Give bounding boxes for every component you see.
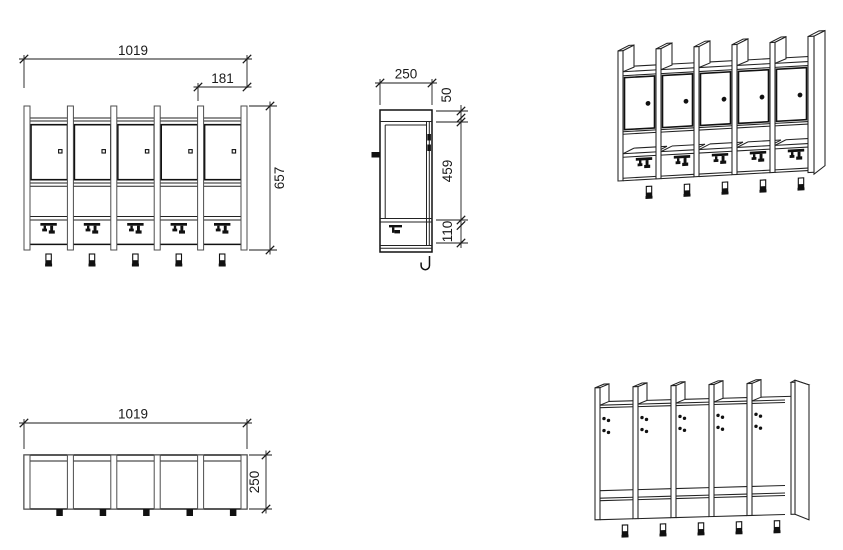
dim-label-side-bottom: 110 [440, 221, 455, 243]
dim-label-front-height: 657 [272, 167, 287, 190]
side-section-view: 250 50 459 110 [358, 58, 488, 294]
front-doors [31, 125, 241, 180]
technical-drawing-sheet: 1019 181 657 [0, 0, 843, 550]
dim-plan-depth: 250 [247, 451, 272, 514]
side-body [380, 110, 432, 252]
dim-front-overall-height: 657 [249, 102, 287, 255]
dim-label-front-width: 1019 [118, 43, 148, 58]
dim-label-front-section: 181 [211, 71, 234, 86]
iso-rear-sections [595, 379, 794, 539]
plan-body [24, 455, 247, 509]
dim-plan-overall-width: 1019 [19, 407, 252, 450]
side-knob [372, 152, 381, 158]
side-double-hook [389, 225, 402, 233]
dim-label-side-top: 50 [439, 87, 454, 102]
plan-knobs [56, 509, 236, 516]
front-elevation-view: 1019 181 657 [0, 28, 310, 282]
dim-label-plan-depth: 250 [247, 471, 262, 494]
dim-label-plan-width: 1019 [118, 407, 148, 422]
top-plan-view: 1019 250 [0, 393, 300, 535]
dim-front-section-width: 181 [194, 71, 252, 101]
iso-front-sections [618, 35, 819, 201]
dim-side-chain: 50 459 110 [436, 87, 468, 248]
iso-front-right-wall [808, 31, 825, 175]
side-hanging-hook [421, 256, 429, 270]
isometric-front-view [612, 22, 843, 214]
iso-rear-right-wall [791, 380, 809, 521]
iso-front-unit [618, 31, 825, 201]
dim-label-side-middle: 459 [440, 160, 455, 183]
front-hanging-hooks [45, 254, 226, 267]
dim-label-side-depth: 250 [395, 67, 418, 82]
dim-side-depth: 250 [375, 67, 437, 106]
isometric-rear-view [585, 366, 833, 548]
iso-rear-unit [595, 378, 809, 538]
